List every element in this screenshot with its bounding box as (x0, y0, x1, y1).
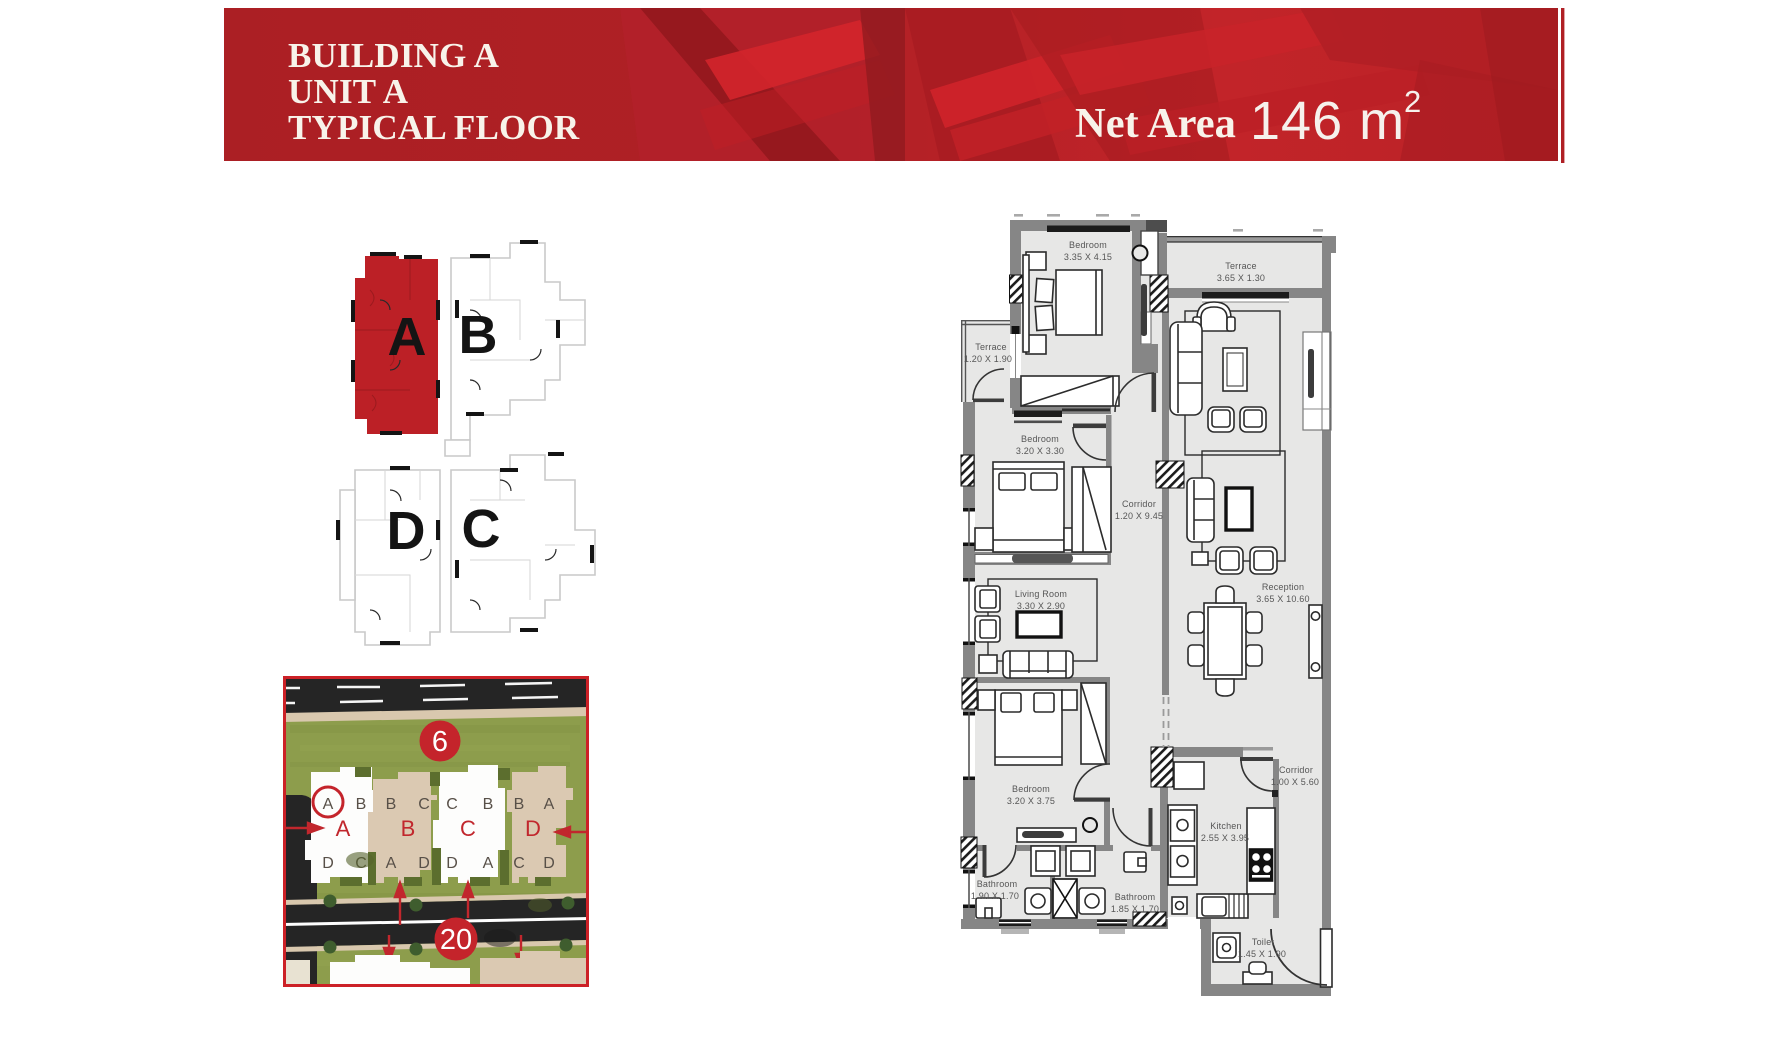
svg-text:A: A (386, 855, 397, 872)
svg-text:Living Room: Living Room (1015, 589, 1067, 599)
svg-text:Corridor: Corridor (1122, 499, 1156, 509)
svg-text:Terrace: Terrace (975, 342, 1006, 352)
svg-text:TYPICAL FLOOR: TYPICAL FLOOR (288, 108, 580, 147)
svg-text:B: B (356, 796, 367, 813)
svg-text:1.20 X 9.45: 1.20 X 9.45 (1115, 511, 1163, 521)
svg-text:B: B (483, 796, 494, 813)
svg-text:6: 6 (432, 726, 448, 758)
svg-text:C: C (446, 796, 458, 813)
svg-text:A: A (483, 855, 494, 872)
svg-text:3.20 X 3.30: 3.20 X 3.30 (1016, 446, 1064, 456)
svg-text:3.65 X 1.30: 3.65 X 1.30 (1217, 273, 1265, 283)
svg-text:Bathroom: Bathroom (1115, 892, 1156, 902)
svg-text:B: B (459, 305, 498, 365)
svg-text:20: 20 (440, 924, 472, 956)
svg-text:2: 2 (1404, 84, 1421, 119)
svg-text:3.30 X 2.90: 3.30 X 2.90 (1017, 601, 1065, 611)
svg-text:1.85 X 1.70: 1.85 X 1.70 (1111, 904, 1159, 914)
svg-text:B: B (386, 796, 397, 813)
svg-text:Corridor: Corridor (1279, 765, 1313, 775)
svg-text:1.90 X 1.70: 1.90 X 1.70 (971, 891, 1019, 901)
svg-text:Bathroom: Bathroom (977, 879, 1018, 889)
svg-text:D: D (525, 816, 541, 841)
svg-text:A: A (336, 816, 351, 841)
svg-text:B: B (514, 796, 525, 813)
svg-text:3.20 X 3.75: 3.20 X 3.75 (1007, 796, 1055, 806)
svg-text:146 m: 146 m (1250, 91, 1405, 151)
svg-text:Kitchen: Kitchen (1210, 821, 1241, 831)
svg-text:D: D (543, 855, 555, 872)
svg-text:C: C (460, 816, 476, 841)
svg-text:Terrace: Terrace (1225, 261, 1256, 271)
svg-text:D: D (322, 855, 334, 872)
svg-text:B: B (401, 816, 416, 841)
svg-text:C: C (462, 499, 501, 559)
svg-text:2.55 X 3.95: 2.55 X 3.95 (1201, 833, 1249, 843)
svg-text:D: D (446, 855, 458, 872)
svg-text:Bedroom: Bedroom (1012, 784, 1050, 794)
svg-text:D: D (418, 855, 430, 872)
svg-text:A: A (544, 796, 555, 813)
svg-text:1.20 X 1.90: 1.20 X 1.90 (964, 354, 1012, 364)
svg-text:Bedroom: Bedroom (1069, 240, 1107, 250)
svg-text:UNIT A: UNIT A (288, 72, 409, 111)
svg-text:A: A (323, 796, 334, 813)
svg-text:3.35 X 4.15: 3.35 X 4.15 (1064, 252, 1112, 262)
svg-text:Net Area: Net Area (1075, 100, 1236, 147)
svg-text:Bedroom: Bedroom (1021, 434, 1059, 444)
svg-text:3.65 X 10.60: 3.65 X 10.60 (1256, 594, 1309, 604)
svg-text:Reception: Reception (1262, 582, 1304, 592)
svg-text:BUILDING A: BUILDING A (288, 36, 500, 75)
svg-text:D: D (387, 501, 426, 561)
svg-text:C: C (418, 796, 430, 813)
svg-text:Toilet: Toilet (1252, 937, 1275, 947)
svg-text:1.45 X 1.90: 1.45 X 1.90 (1238, 949, 1286, 959)
svg-text:1.00 X 5.60: 1.00 X 5.60 (1271, 777, 1319, 787)
svg-text:A: A (388, 307, 427, 367)
svg-text:C: C (513, 855, 525, 872)
